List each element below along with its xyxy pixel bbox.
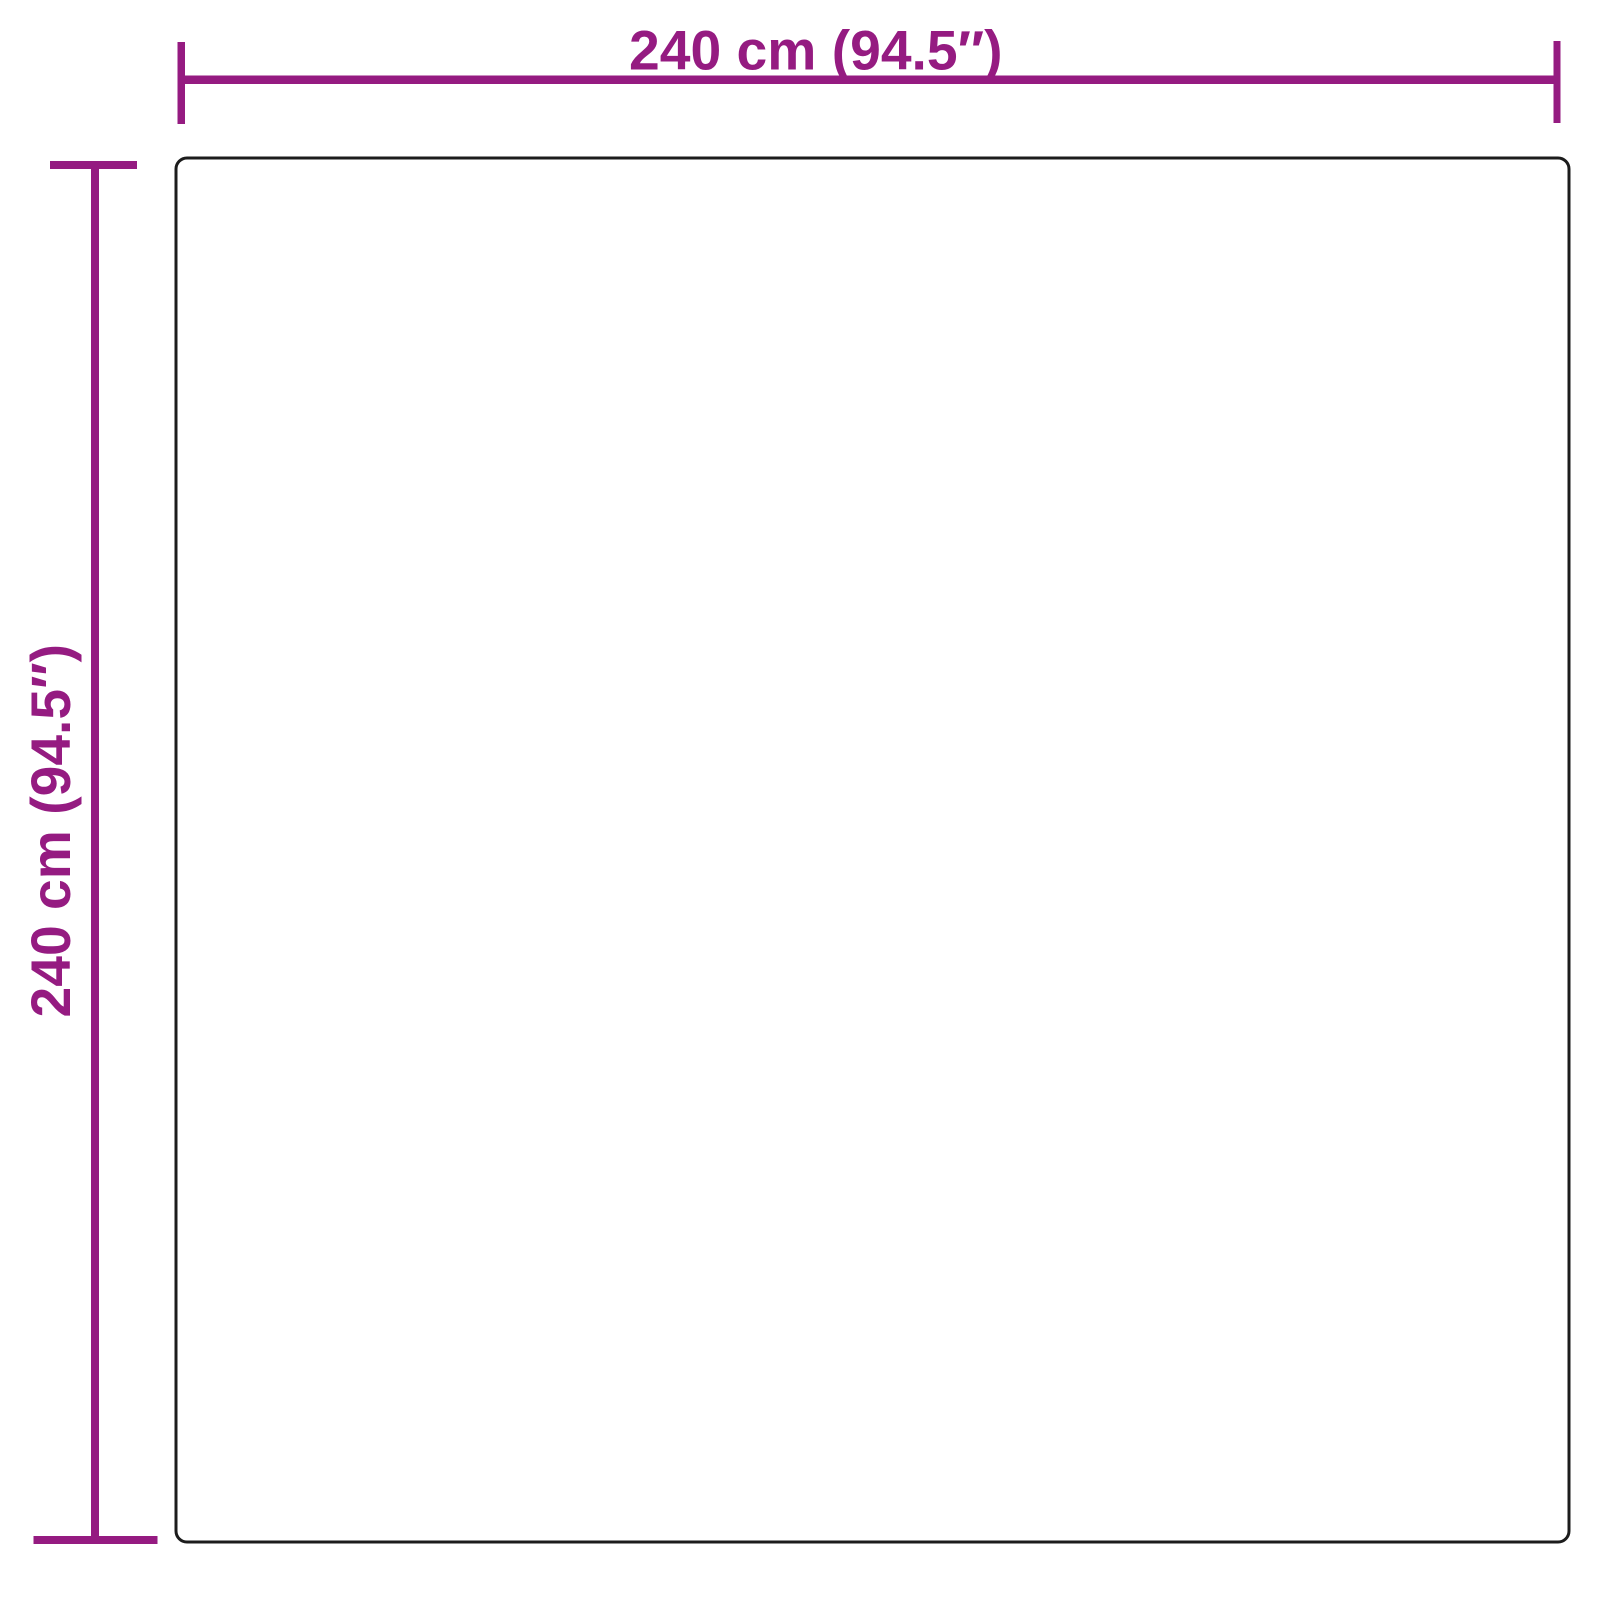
svg-text:240 cm (94.5″): 240 cm (94.5″) xyxy=(629,19,1003,82)
svg-text:240 cm (94.5″): 240 cm (94.5″) xyxy=(19,644,82,1018)
